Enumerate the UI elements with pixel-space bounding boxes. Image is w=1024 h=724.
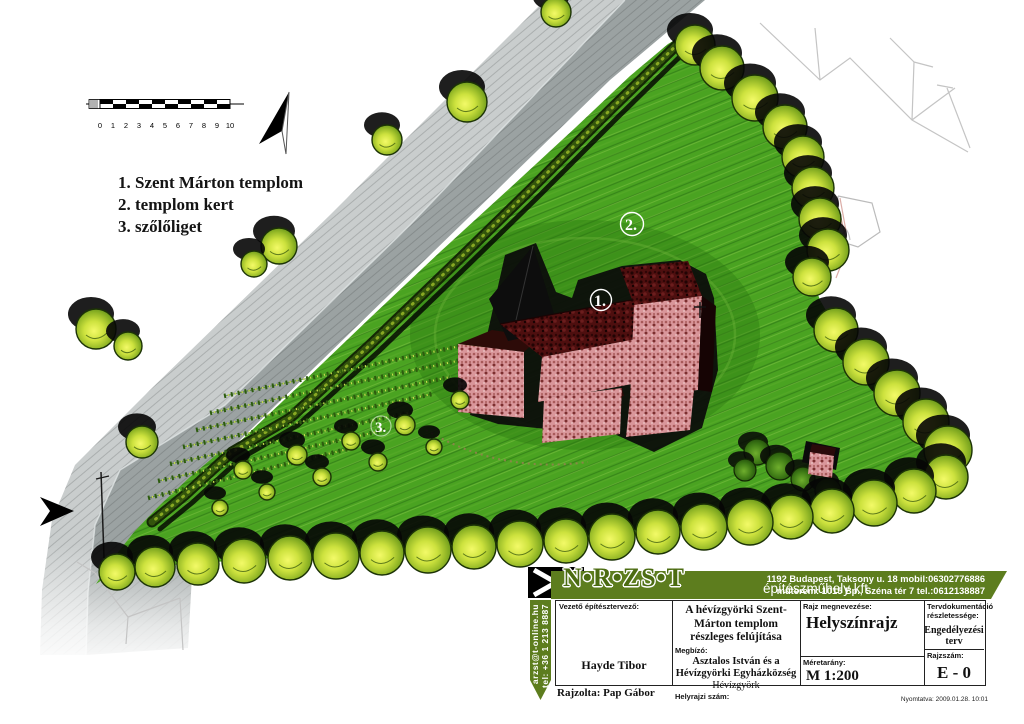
scale-bar: 0 1 2 3 4 5 6 7 8 9 10: [86, 100, 244, 131]
project-title: A hévízgyörki Szent-Márton templom részl…: [672, 604, 800, 645]
doc-detail-value: Engedélyezési terv: [924, 625, 984, 647]
north-arrow-icon: [259, 92, 289, 154]
scale-tick: 1: [111, 121, 115, 130]
client-name: Asztalos István és a Hévízgyörki Egyházk…: [672, 656, 800, 680]
legend-item-2: 2. templom kert: [118, 194, 303, 216]
ribbon-phone: tel: +36 1 213 8887: [540, 604, 550, 688]
doc-detail-label: Tervdokumentáció részletessége:: [927, 603, 984, 620]
drawing-number-label: Rajzszám:: [927, 652, 984, 661]
client-label: Megbízó:: [675, 647, 800, 656]
scale-label: Méretarány:: [803, 659, 924, 668]
lead-architect-name: Hayde Tibor: [556, 658, 672, 673]
doc-detail-cell: Tervdokumentáció részletessége: Engedély…: [924, 601, 984, 685]
drawing-name-cell: Rajz megnevezése: Helyszínrajz Méretarán…: [800, 601, 925, 685]
scale-tick: 5: [163, 121, 167, 130]
scale-value: M 1:200: [806, 668, 924, 685]
contact-ribbon: arzst@t-online.hu tel: +36 1 213 8887: [530, 600, 551, 700]
architect-cell: Vezető építésztervező: Hayde Tibor: [556, 601, 673, 685]
scale-tick: 2: [124, 121, 128, 130]
legend-item-3: 3. szőlőliget: [118, 216, 303, 238]
legend: 1. Szent Márton templom 2. templom kert …: [118, 172, 303, 238]
drawing-name-label: Rajz megnevezése:: [803, 603, 924, 612]
printed-timestamp: Nyomtatva: 2009.01.28. 10:01: [901, 696, 988, 703]
church-annex-wall: [458, 344, 524, 418]
parcel-number-label: Helyrajzi szám:: [675, 693, 800, 702]
client-place: Hévízgyörk: [672, 680, 800, 691]
address-line-1: 1192 Budapest, Taksony u. 18 mobil:06302…: [735, 574, 985, 586]
site-plan-sheet: 1. 2. 3. 0 1 2 3 4 5 6 7 8 9 10: [0, 0, 1024, 724]
plan-label-2: 2.: [625, 217, 637, 234]
plan-label-1: 1.: [594, 293, 606, 310]
scale-tick: 10: [226, 121, 234, 130]
title-block: építészműhely kft 1192 Budapest, Taksony…: [527, 565, 1024, 715]
scale-tick: 7: [189, 121, 193, 130]
drawing-name: Helyszínrajz: [806, 613, 924, 633]
lead-architect-label: Vezető építésztervező:: [559, 603, 672, 612]
scale-tick: 3: [137, 121, 141, 130]
company-address: 1192 Budapest, Taksony u. 18 mobil:06302…: [735, 574, 1007, 597]
company-logo-text: N•R•ZS•T: [563, 563, 685, 593]
legend-item-1: 1. Szent Márton templom: [118, 172, 303, 194]
church-tower-wall: [630, 296, 702, 398]
title-block-table: Vezető építésztervező: Hayde Tibor A hév…: [555, 600, 986, 686]
plan-label-3: 3.: [375, 420, 387, 436]
project-cell: A hévízgyörki Szent-Márton templom részl…: [672, 601, 801, 685]
scale-tick: 4: [150, 121, 154, 130]
drawing-number: E - 0: [924, 663, 984, 683]
address-line-2: műterem: 1015 Bp., Széna tér 7 tel.:0612…: [735, 586, 985, 598]
scale-tick: 8: [202, 121, 206, 130]
scale-tick: 0: [98, 121, 102, 130]
drawn-by: Rajzolta: Pap Gábor: [557, 687, 655, 699]
scale-tick: 6: [176, 121, 180, 130]
ribbon-email: arzst@t-online.hu: [530, 604, 540, 684]
scale-tick: 9: [215, 121, 219, 130]
